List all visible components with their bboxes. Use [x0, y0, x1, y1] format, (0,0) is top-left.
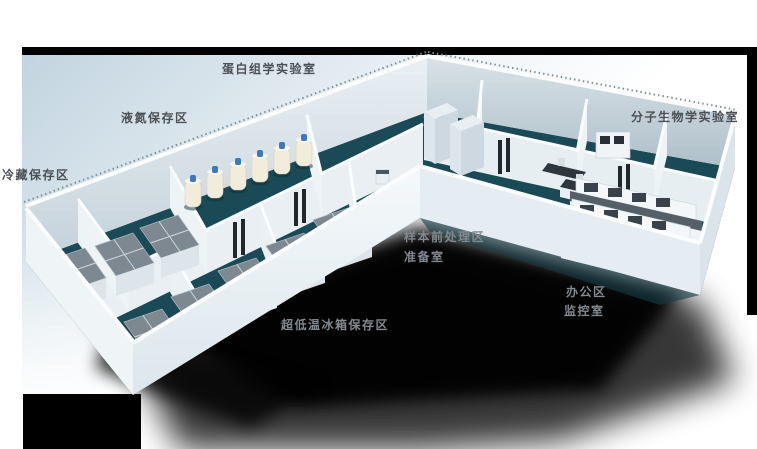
ln2-tank — [184, 175, 202, 211]
ln2-tank — [206, 166, 224, 202]
top-dark-strip — [22, 47, 748, 55]
ln2-tank — [295, 134, 313, 170]
tall-cabinet — [450, 115, 484, 176]
ln2-tank — [273, 142, 291, 178]
ln2-tank — [251, 150, 269, 186]
lab-3d-floorplan-illustration — [0, 0, 757, 449]
ln2-tank — [229, 158, 247, 194]
bottom-left-dark-patch — [23, 394, 141, 449]
lab-floorplan-scene: 蛋白组学实验室液氮保存区冷藏保存区分子生物学实验室样本前处理区准备室超低温冰箱保… — [0, 0, 757, 449]
right-dark-strip — [747, 47, 757, 315]
